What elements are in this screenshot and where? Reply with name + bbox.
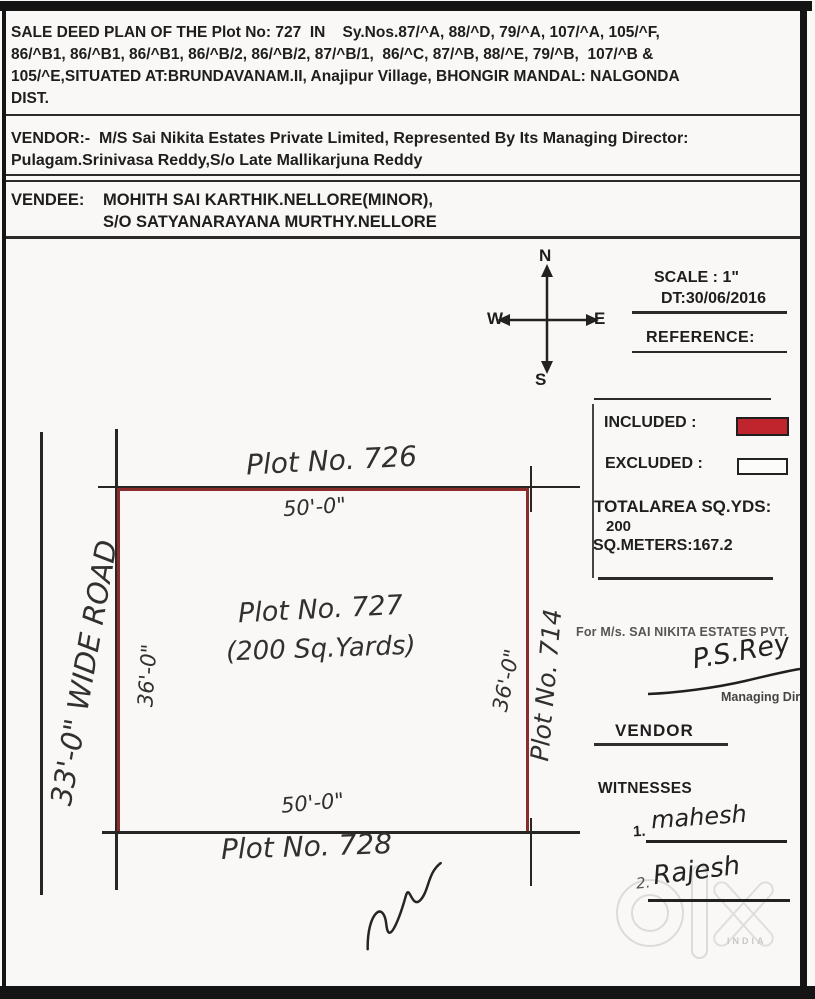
page-border-left [2,1,6,993]
page-border-right [800,2,807,992]
included-color-swatch [736,417,789,436]
vendor-signature-line [594,743,728,746]
road-edge-line-outer [40,432,43,895]
sale-deed-plan-document: INDIA SALE DEED PLAN OF THE Plot No: 727… [0,0,815,999]
deed-title-line-2: 86/^B1, 86/^B1, 86/^B1, 86/^B/2, 86/^B/2… [11,46,653,64]
witness1-number: 1. [633,823,646,841]
scale-label: SCALE : 1" [654,269,739,287]
underline [632,351,787,353]
witnesses-label: WITNESSES [598,780,692,798]
page-border-bottom [0,986,815,999]
excluded-label: EXCLUDED : [605,455,703,473]
underline [632,311,787,314]
witness2-number: 2. [635,873,651,892]
page-border-top [0,1,812,11]
total-area-label: TOTALAREA SQ.YDS: [594,497,771,517]
legend-top-line [594,398,771,400]
north-dimension-label: 50'-0" [282,493,347,521]
witness1-signature-line [646,840,787,843]
section-divider [6,180,800,182]
vendor-line-2: Pulagam.Srinivasa Reddy,S/o Late Mallika… [11,152,422,170]
total-area-value: 200 [606,518,631,535]
deed-title-line-4: DIST. [11,90,49,108]
compass-east-label: E [594,309,605,329]
deed-title-line-1: SALE DEED PLAN OF THE Plot No: 727 IN Sy… [11,24,660,42]
section-divider [6,236,802,239]
vendor-signature-label: VENDOR [615,721,694,741]
corner-tick-bottom-right [530,818,532,886]
compass-south-label: S [535,370,546,390]
vendee-line-2: S/O SATYANARAYANA MURTHY.NELLORE [103,213,437,232]
east-neighbor-plot-label: Plot No. 714 [525,591,569,763]
compass-west-label: W [487,309,503,329]
watermark-country-label: INDIA [727,936,767,946]
sq-meters-value: SQ.METERS:167.2 [593,537,733,555]
section-divider [6,174,800,176]
managing-director-title: Managing Dire [721,690,807,704]
handwritten-scribble-signature [338,850,478,966]
included-label: INCLUDED : [604,414,696,432]
north-neighbor-plot-label: Plot No. 726 [245,440,417,482]
date-label: DT:30/06/2016 [661,290,766,308]
section-divider [6,114,800,116]
deed-title-line-3: 105/^E,SITUATED AT:BRUNDAVANAM.II, Anaji… [11,68,680,86]
excluded-color-swatch [737,458,788,475]
vendor-line-1: VENDOR:- M/S Sai Nikita Estates Private … [11,130,689,148]
north-boundary-extension-line [98,486,580,488]
reference-label: REFERENCE: [646,329,755,347]
vendee-line-1: MOHITH SAI KARTHIK.NELLORE(MINOR), [103,191,433,210]
south-neighbor-plot-label: Plot No. 728 [220,827,392,866]
vendee-label: VENDEE: [11,191,84,210]
witness2-signature-line [648,899,790,902]
legend-bottom-line [598,577,773,580]
corner-tick-top-right [530,466,532,512]
road-label: 33'-0" WIDE ROAD [44,526,126,808]
compass-north-label: N [539,246,551,266]
witness1-signature: mahesh [650,800,748,835]
